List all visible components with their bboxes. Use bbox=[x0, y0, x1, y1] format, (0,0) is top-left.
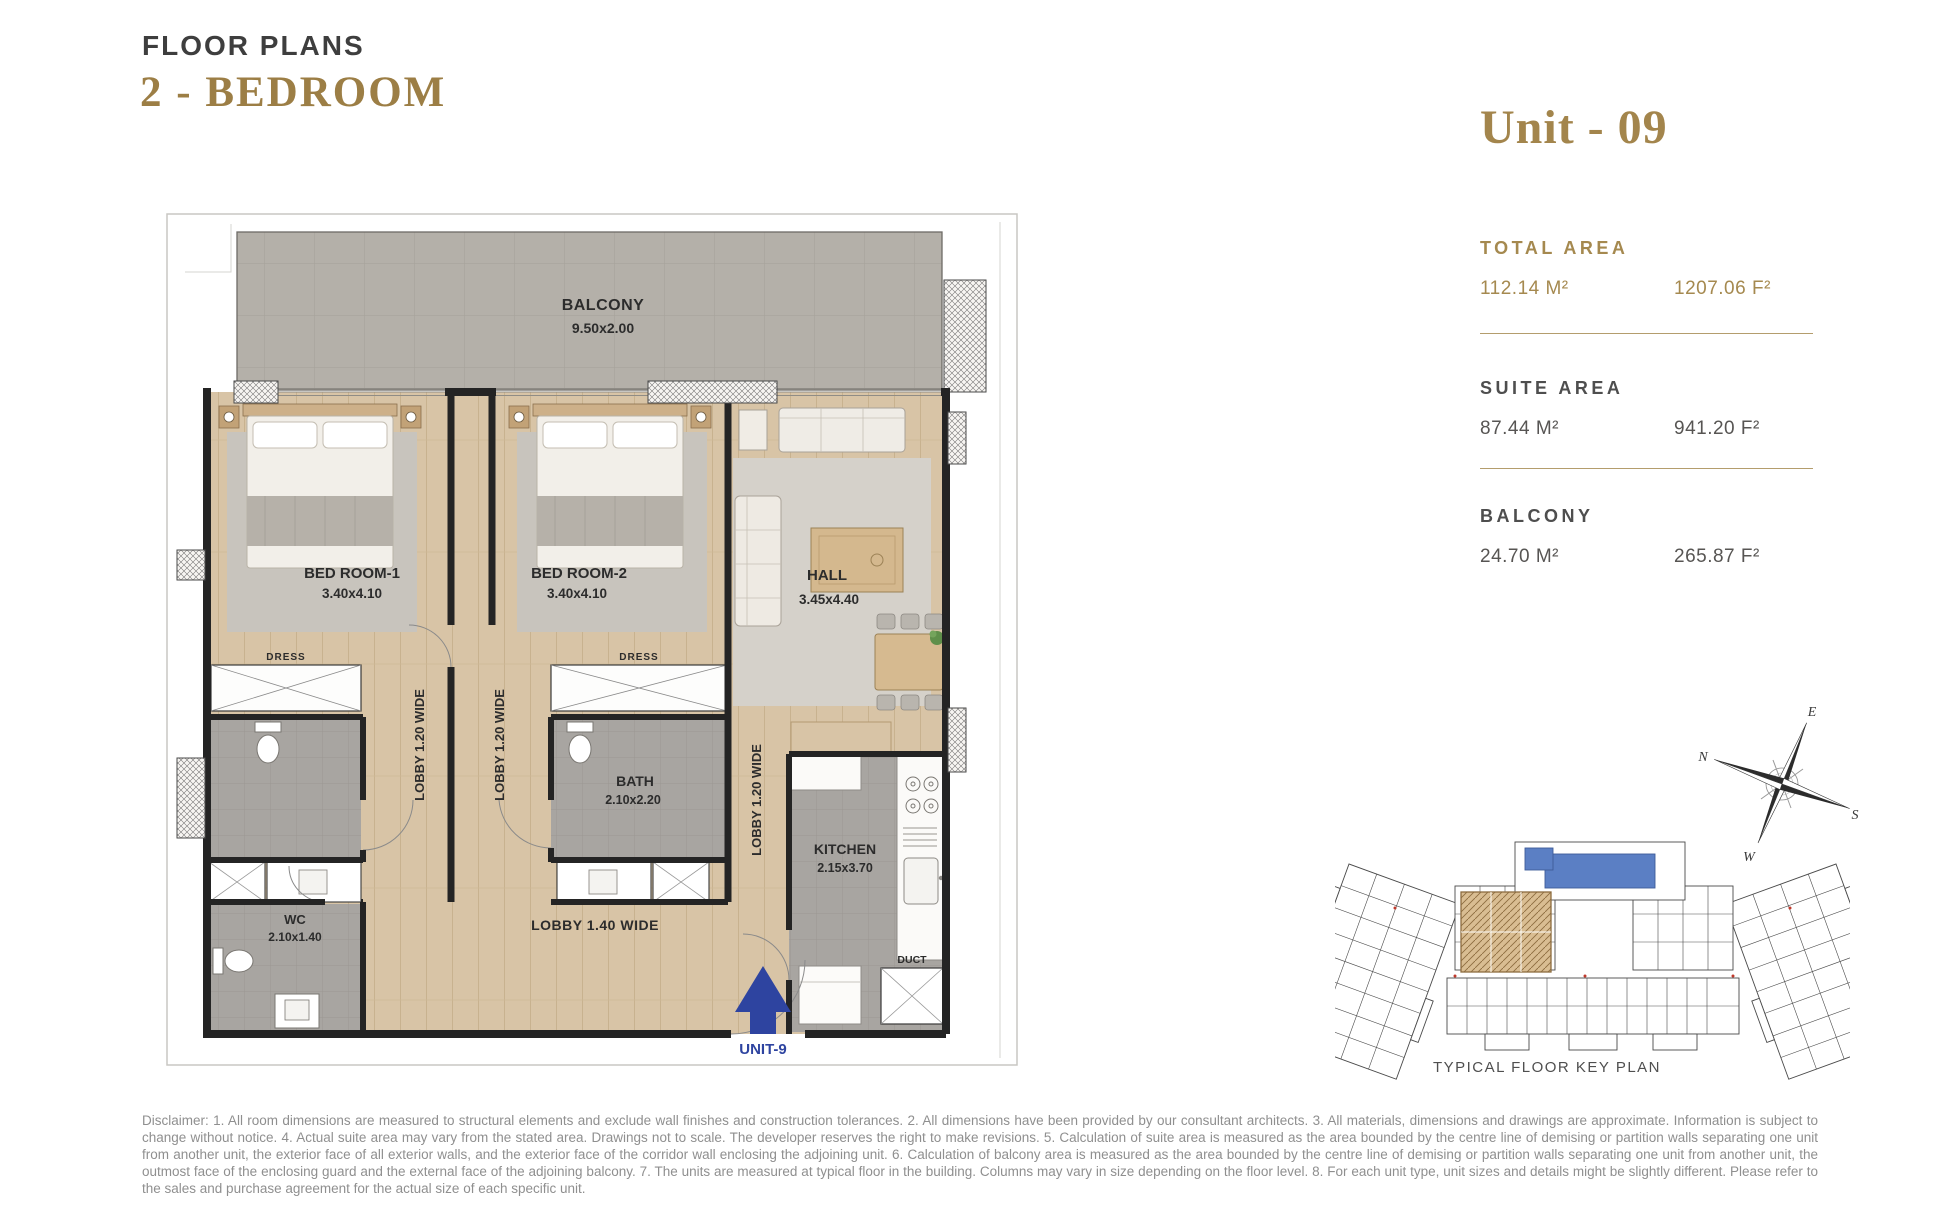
floor-plan-page: FLOOR PLANS 2 - BEDROOM bbox=[0, 0, 1948, 1212]
key-plan: TYPICAL FLOOR KEY PLAN bbox=[1335, 828, 1850, 1080]
sink-icon bbox=[904, 858, 938, 904]
divider-1 bbox=[1480, 333, 1813, 334]
suite-area-label: SUITE AREA bbox=[1480, 378, 1623, 399]
unit-floor-plan: BALCONY 9.50x2.00 DRESS DRESS bbox=[115, 160, 1035, 1090]
divider-2 bbox=[1480, 468, 1813, 469]
bath1-floor bbox=[209, 719, 361, 858]
compass-e: E bbox=[1807, 705, 1817, 720]
bed2-furniture bbox=[509, 404, 711, 568]
balcony-area-metric: 24.70 M² bbox=[1480, 546, 1559, 568]
balcony-dims: 9.50x2.00 bbox=[572, 320, 634, 336]
page-title: FLOOR PLANS bbox=[142, 30, 365, 62]
balcony-area-label: BALCONY bbox=[1480, 506, 1594, 527]
lobby-v3-label: LOBBY 1.20 WIDE bbox=[749, 744, 764, 856]
unit-title: Unit - 09 bbox=[1480, 100, 1668, 155]
kitchen-dims: 2.15x3.70 bbox=[817, 861, 873, 875]
wc-label: WC bbox=[284, 912, 306, 927]
total-area-metric: 112.14 M² bbox=[1480, 278, 1569, 300]
balcony-label: BALCONY bbox=[562, 297, 645, 314]
hall-dims: 3.45x4.40 bbox=[799, 592, 859, 607]
bath-label: BATH bbox=[616, 773, 654, 789]
compass-s: S bbox=[1852, 808, 1859, 823]
wc-dims: 2.10x1.40 bbox=[268, 930, 322, 944]
page-subtitle: 2 - BEDROOM bbox=[140, 68, 446, 117]
dress2-label: DRESS bbox=[619, 652, 658, 663]
bath-dims: 2.10x2.20 bbox=[605, 793, 661, 807]
bedroom2-dims: 3.40x4.10 bbox=[547, 586, 607, 601]
balcony-area-imperial: 265.87 F² bbox=[1674, 546, 1760, 568]
compass-icon bbox=[1714, 723, 1849, 843]
bed1-furniture bbox=[219, 404, 421, 568]
hall-label: HALL bbox=[807, 567, 847, 584]
kitchen-label: KITCHEN bbox=[814, 841, 876, 857]
bedroom2-label: BED ROOM-2 bbox=[531, 565, 627, 582]
suite-area-metric: 87.44 M² bbox=[1480, 418, 1559, 440]
suite-area-imperial: 941.20 F² bbox=[1674, 418, 1760, 440]
disclaimer-text: Disclaimer: 1. All room dimensions are m… bbox=[142, 1112, 1818, 1197]
lobby-h-label: LOBBY 1.40 WIDE bbox=[531, 917, 659, 933]
key-plan-building bbox=[1335, 842, 1850, 1080]
unit-entry-label: UNIT-9 bbox=[739, 1041, 787, 1058]
total-area-label: TOTAL AREA bbox=[1480, 238, 1628, 259]
lobby-v2-label: LOBBY 1.20 WIDE bbox=[492, 689, 507, 801]
key-plan-caption: TYPICAL FLOOR KEY PLAN bbox=[1433, 1059, 1661, 1076]
duct-label: DUCT bbox=[897, 954, 927, 966]
compass-n: N bbox=[1697, 750, 1708, 765]
lobby-v1-label: LOBBY 1.20 WIDE bbox=[412, 689, 427, 801]
bedroom1-dims: 3.40x4.10 bbox=[322, 586, 382, 601]
bedroom1-label: BED ROOM-1 bbox=[304, 565, 400, 582]
total-area-imperial: 1207.06 F² bbox=[1674, 278, 1771, 300]
balcony-area: BALCONY 9.50x2.00 bbox=[237, 232, 986, 392]
dress1-label: DRESS bbox=[266, 652, 305, 663]
